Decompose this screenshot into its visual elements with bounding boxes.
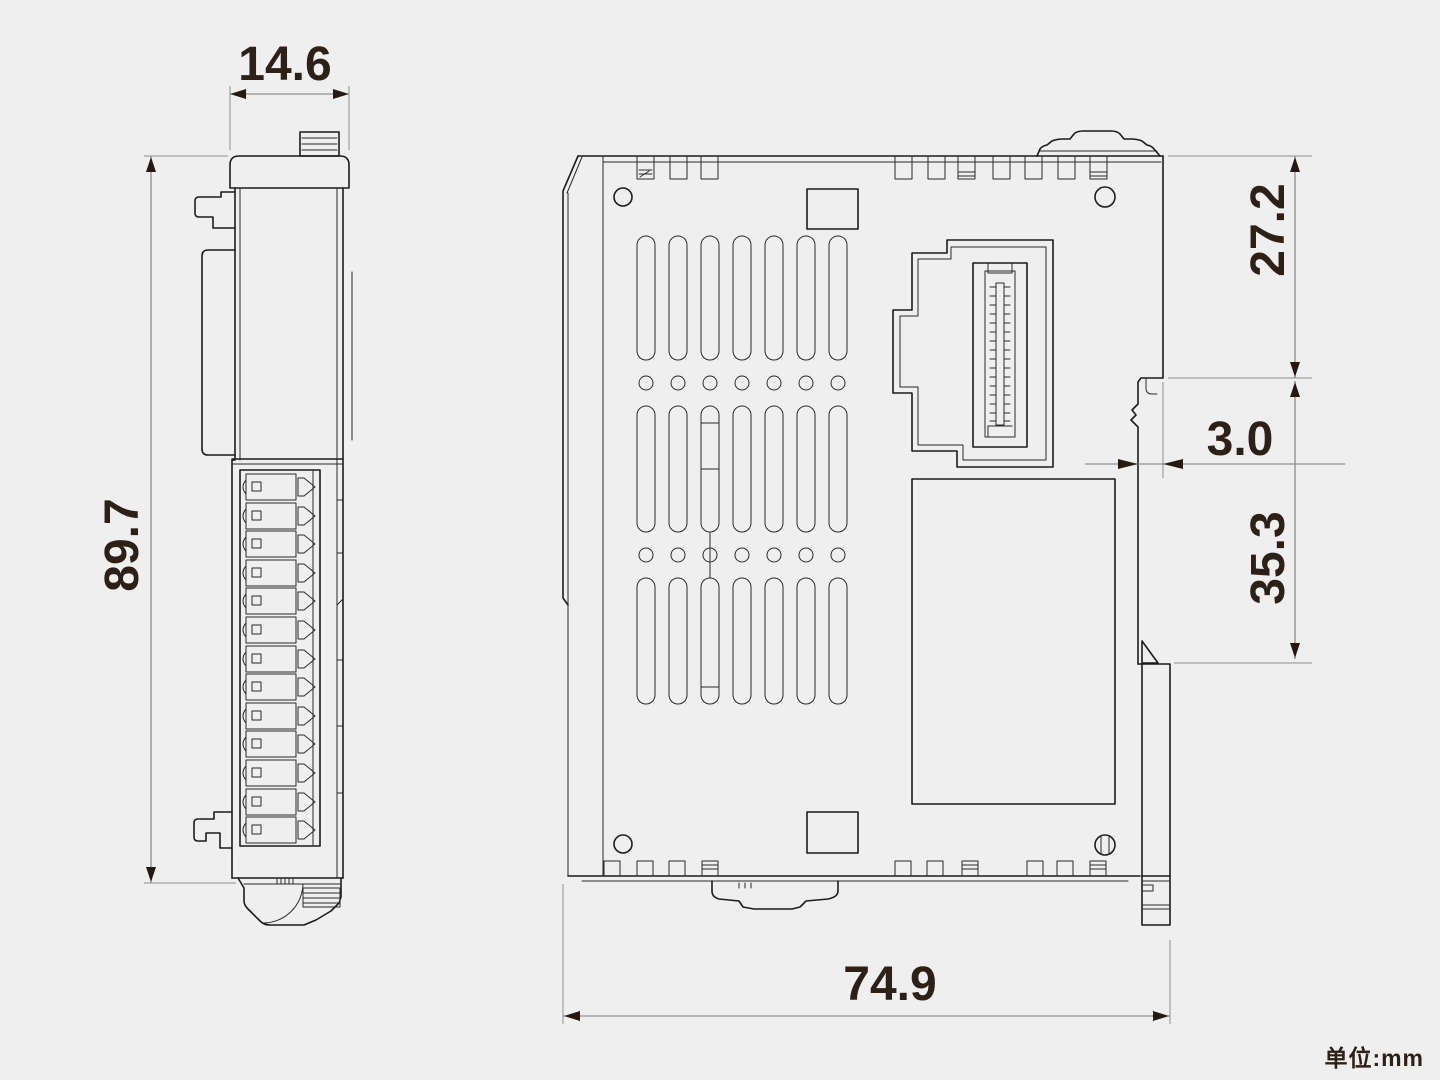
terminal-wedges xyxy=(298,478,315,839)
vent-holes xyxy=(639,376,845,562)
technical-drawing-page: 14.6 89.7 27.2 3.0 35.3 74.9 单位:mm xyxy=(0,0,1440,1080)
front-view xyxy=(563,131,1170,925)
top-connector xyxy=(300,132,339,156)
top-cap xyxy=(230,156,349,188)
rail-notch-triangle xyxy=(1142,641,1158,663)
unit-note: 单位:mm xyxy=(1324,1045,1424,1071)
side-panel-rect xyxy=(912,479,1115,804)
terminal-cells xyxy=(246,474,296,843)
bottom-clip-bump xyxy=(712,881,838,909)
side-view xyxy=(194,132,352,925)
hole-top-right xyxy=(1095,187,1115,207)
side-cover-plate xyxy=(202,250,235,455)
bottom-label-rect xyxy=(807,812,858,853)
hole-bottom-left xyxy=(614,835,632,853)
top-clip-bump xyxy=(1037,131,1160,156)
dimension-label: 3.0 xyxy=(1207,413,1274,466)
dimension-label: 27.2 xyxy=(1242,183,1295,276)
connector-pins xyxy=(990,287,1010,421)
dimension-label: 89.7 xyxy=(96,498,149,591)
dimension-drawing: 14.6 89.7 27.2 3.0 35.3 74.9 单位:mm xyxy=(0,0,1440,1080)
screw-bottom-right xyxy=(1095,835,1115,855)
body-edges xyxy=(232,188,343,878)
top-edge-tabs xyxy=(637,156,1107,179)
front-shell xyxy=(563,156,1163,881)
dimension-side-width: 14.6 xyxy=(230,38,349,150)
terminal-screws xyxy=(252,482,261,834)
bottom-cap xyxy=(232,878,343,925)
bottom-edge-tabs xyxy=(604,861,1106,876)
hole-top-left xyxy=(614,188,632,206)
vent-slots xyxy=(637,236,847,704)
dimension-label: 14.6 xyxy=(238,38,331,91)
dimension-side-height: 89.7 xyxy=(96,156,236,883)
dimension-label: 35.3 xyxy=(1242,511,1295,604)
top-label-rect xyxy=(807,189,858,229)
dimension-rail-recess-depth: 3.0 xyxy=(1085,382,1345,478)
dimension-front-upper-height: 27.2 xyxy=(1168,156,1312,378)
din-rail-foot xyxy=(1138,664,1170,925)
terminal-block xyxy=(232,459,343,846)
expansion-connector xyxy=(893,240,1053,467)
lower-din-clip xyxy=(194,812,232,848)
dimension-label: 74.9 xyxy=(843,958,936,1011)
upper-din-clip xyxy=(195,192,235,228)
dimension-front-width: 74.9 xyxy=(563,884,1170,1024)
